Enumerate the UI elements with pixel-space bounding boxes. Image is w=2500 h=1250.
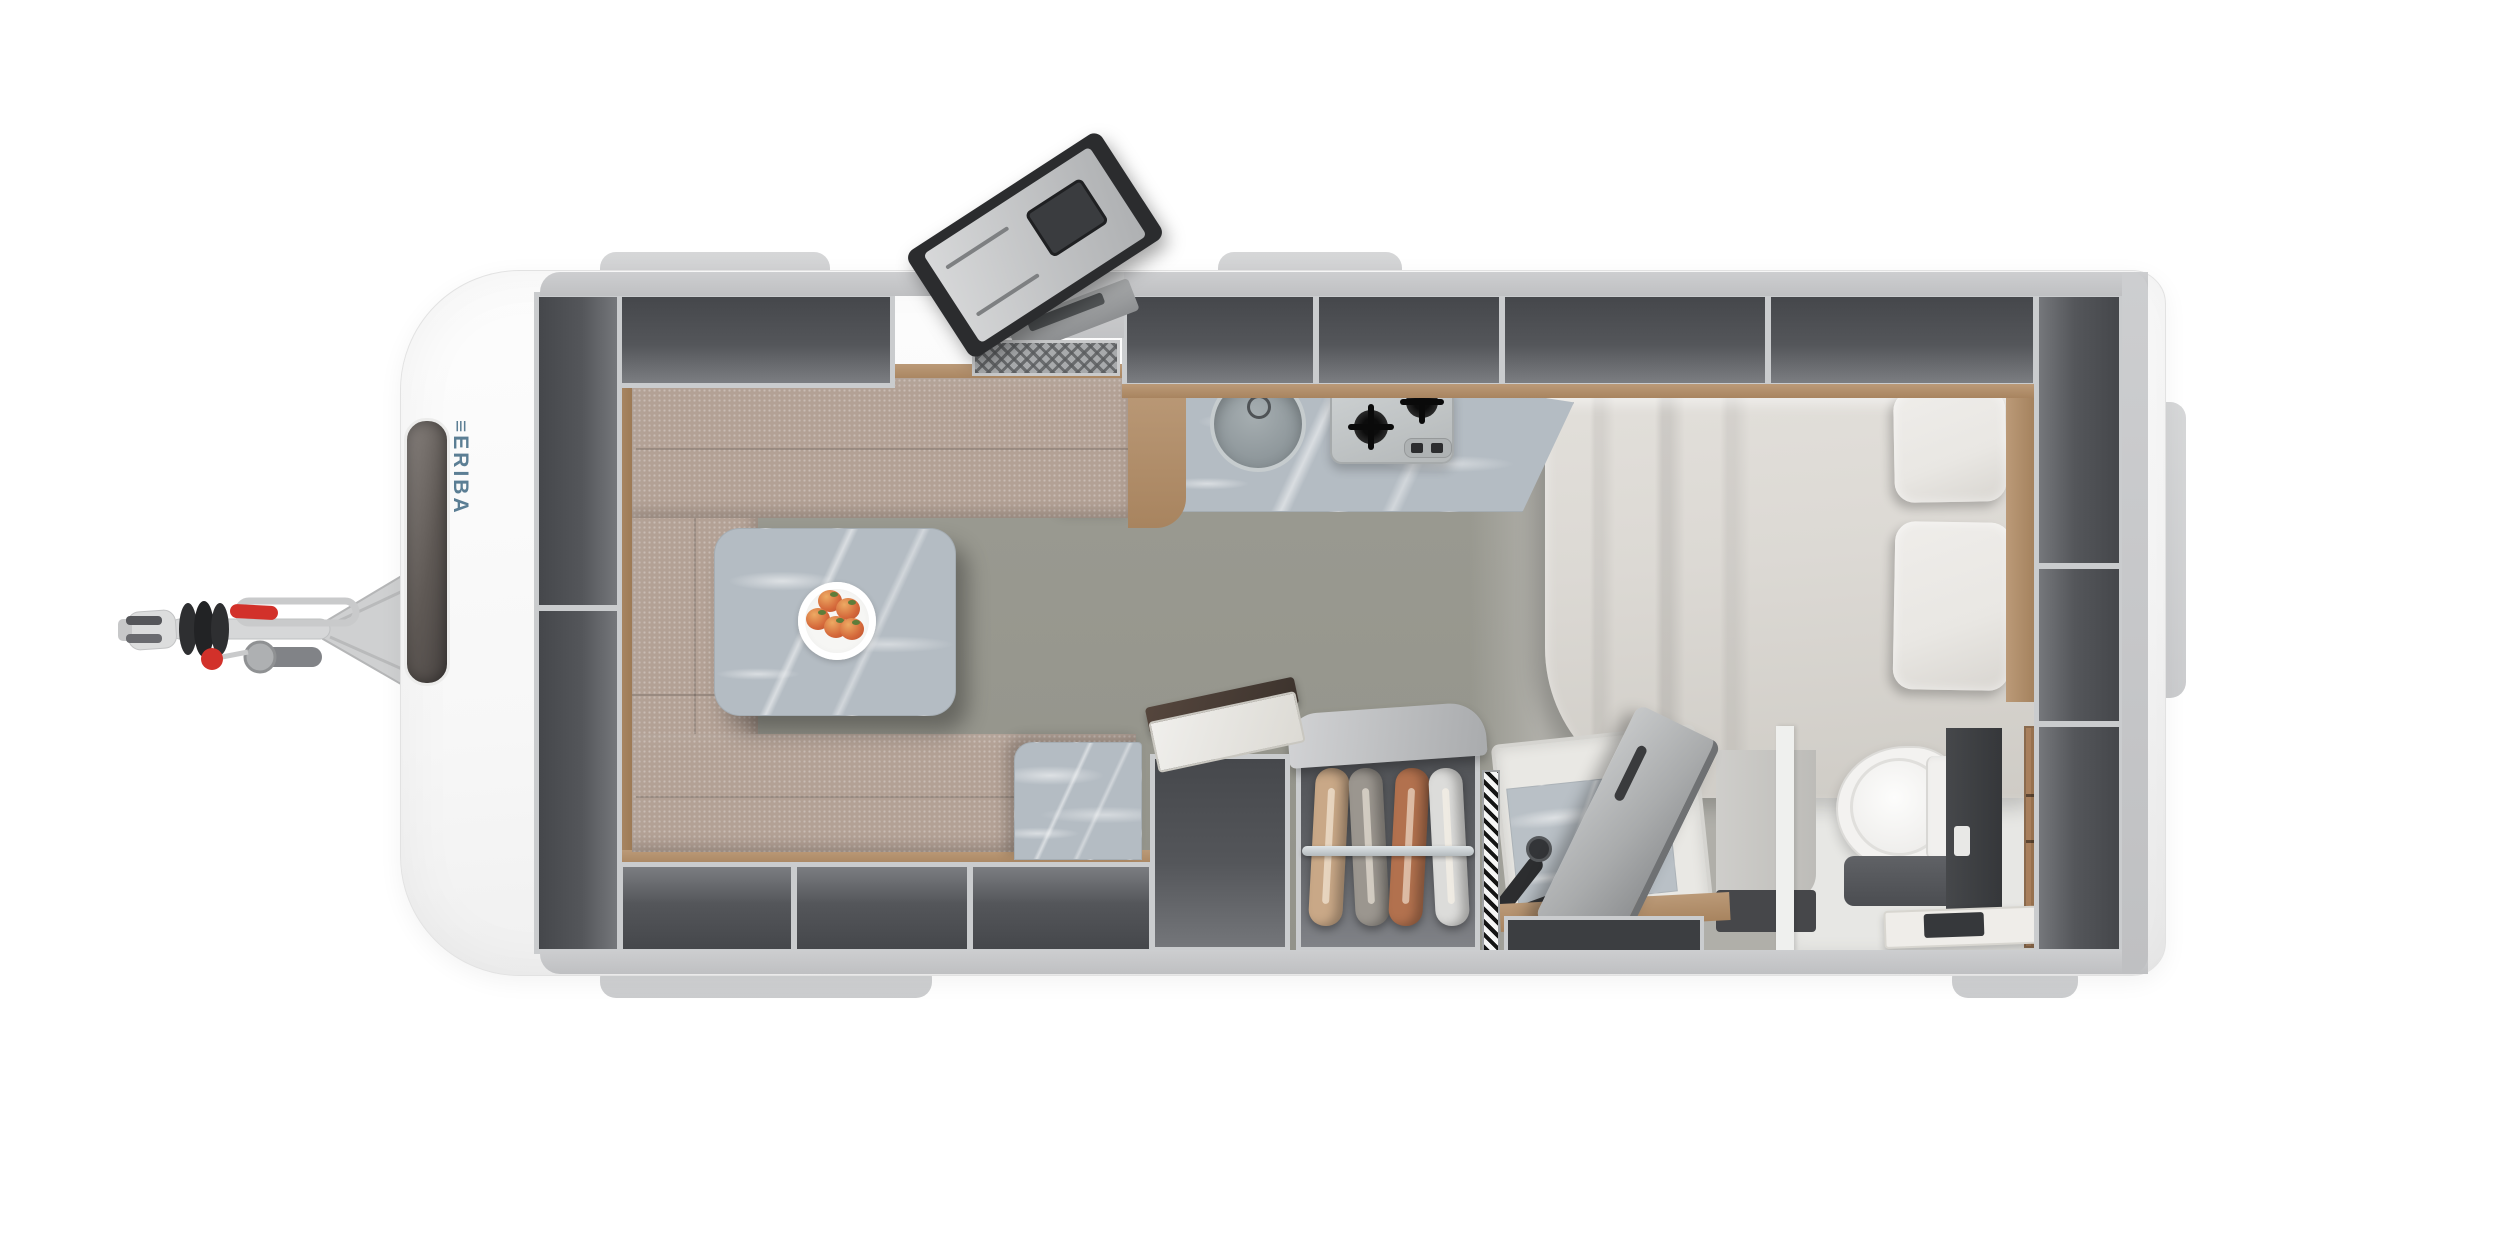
- front-window: [404, 418, 450, 686]
- bed-base-shadow: [1716, 890, 1816, 932]
- caravan-floorplan: ≡ERIBA: [0, 0, 2500, 1250]
- door-vent-line: [976, 273, 1040, 317]
- fruit: [840, 618, 864, 640]
- pillow: [1893, 521, 2012, 691]
- front-locker: [534, 606, 622, 954]
- seat-seam: [636, 448, 1132, 450]
- door-vent-line: [945, 226, 1009, 270]
- rear-shelf: [2034, 292, 2124, 568]
- under-seat-locker: [792, 862, 972, 954]
- handbrake-red-grip: [230, 604, 279, 620]
- pillow: [1893, 389, 2007, 503]
- rear-shelf: [2034, 564, 2124, 726]
- under-seat-locker: [968, 862, 1154, 954]
- logo-stripes-icon: ≡: [449, 420, 472, 435]
- overhead-locker: [1314, 292, 1504, 388]
- wardrobe-rail: [1302, 846, 1474, 856]
- brand-logo: ≡ERIBA: [448, 420, 472, 516]
- entry-door-window: [1024, 177, 1109, 258]
- front-locker: [534, 292, 622, 610]
- rear-shelf: [2034, 722, 2124, 954]
- storage-chest: [1150, 754, 1290, 952]
- bed-base-side: [1716, 750, 1816, 900]
- tow-hitch: [110, 555, 420, 705]
- dinette-armrest: [1128, 378, 1186, 528]
- bathroom-switch: [1954, 826, 1970, 856]
- concertina-door: [1482, 770, 1500, 952]
- overhead-locker: [1122, 292, 1318, 388]
- overhead-trim: [1122, 384, 2034, 398]
- overhead-locker: [617, 292, 895, 388]
- bathroom-wall-column: [1946, 728, 2002, 910]
- hitch-coupler: [118, 609, 177, 650]
- tablet: [1924, 912, 1985, 938]
- hob-controls: [1404, 438, 1452, 458]
- under-shower-locker: [1504, 916, 1704, 954]
- dinette-side-block: [1014, 742, 1142, 860]
- overhead-locker: [1500, 292, 1770, 388]
- bathroom-wall: [1776, 726, 1794, 952]
- logo-text: ERIBA: [449, 435, 472, 515]
- jockey-wheel-cap: [245, 642, 275, 672]
- wall-top: [540, 272, 2148, 296]
- lid-handle: [1613, 744, 1648, 802]
- wall-bottom: [540, 950, 2148, 974]
- overhead-locker: [1766, 292, 2038, 388]
- fruit-plate: [798, 582, 876, 660]
- kitchen-faucet: [1247, 395, 1271, 419]
- hitch-bellows: [211, 603, 229, 655]
- jockey-red-knob: [201, 648, 223, 670]
- wall-rear: [2122, 272, 2148, 974]
- under-seat-locker: [618, 862, 796, 954]
- shower-wand-head: [1526, 836, 1552, 862]
- hob-burner: [1354, 410, 1388, 444]
